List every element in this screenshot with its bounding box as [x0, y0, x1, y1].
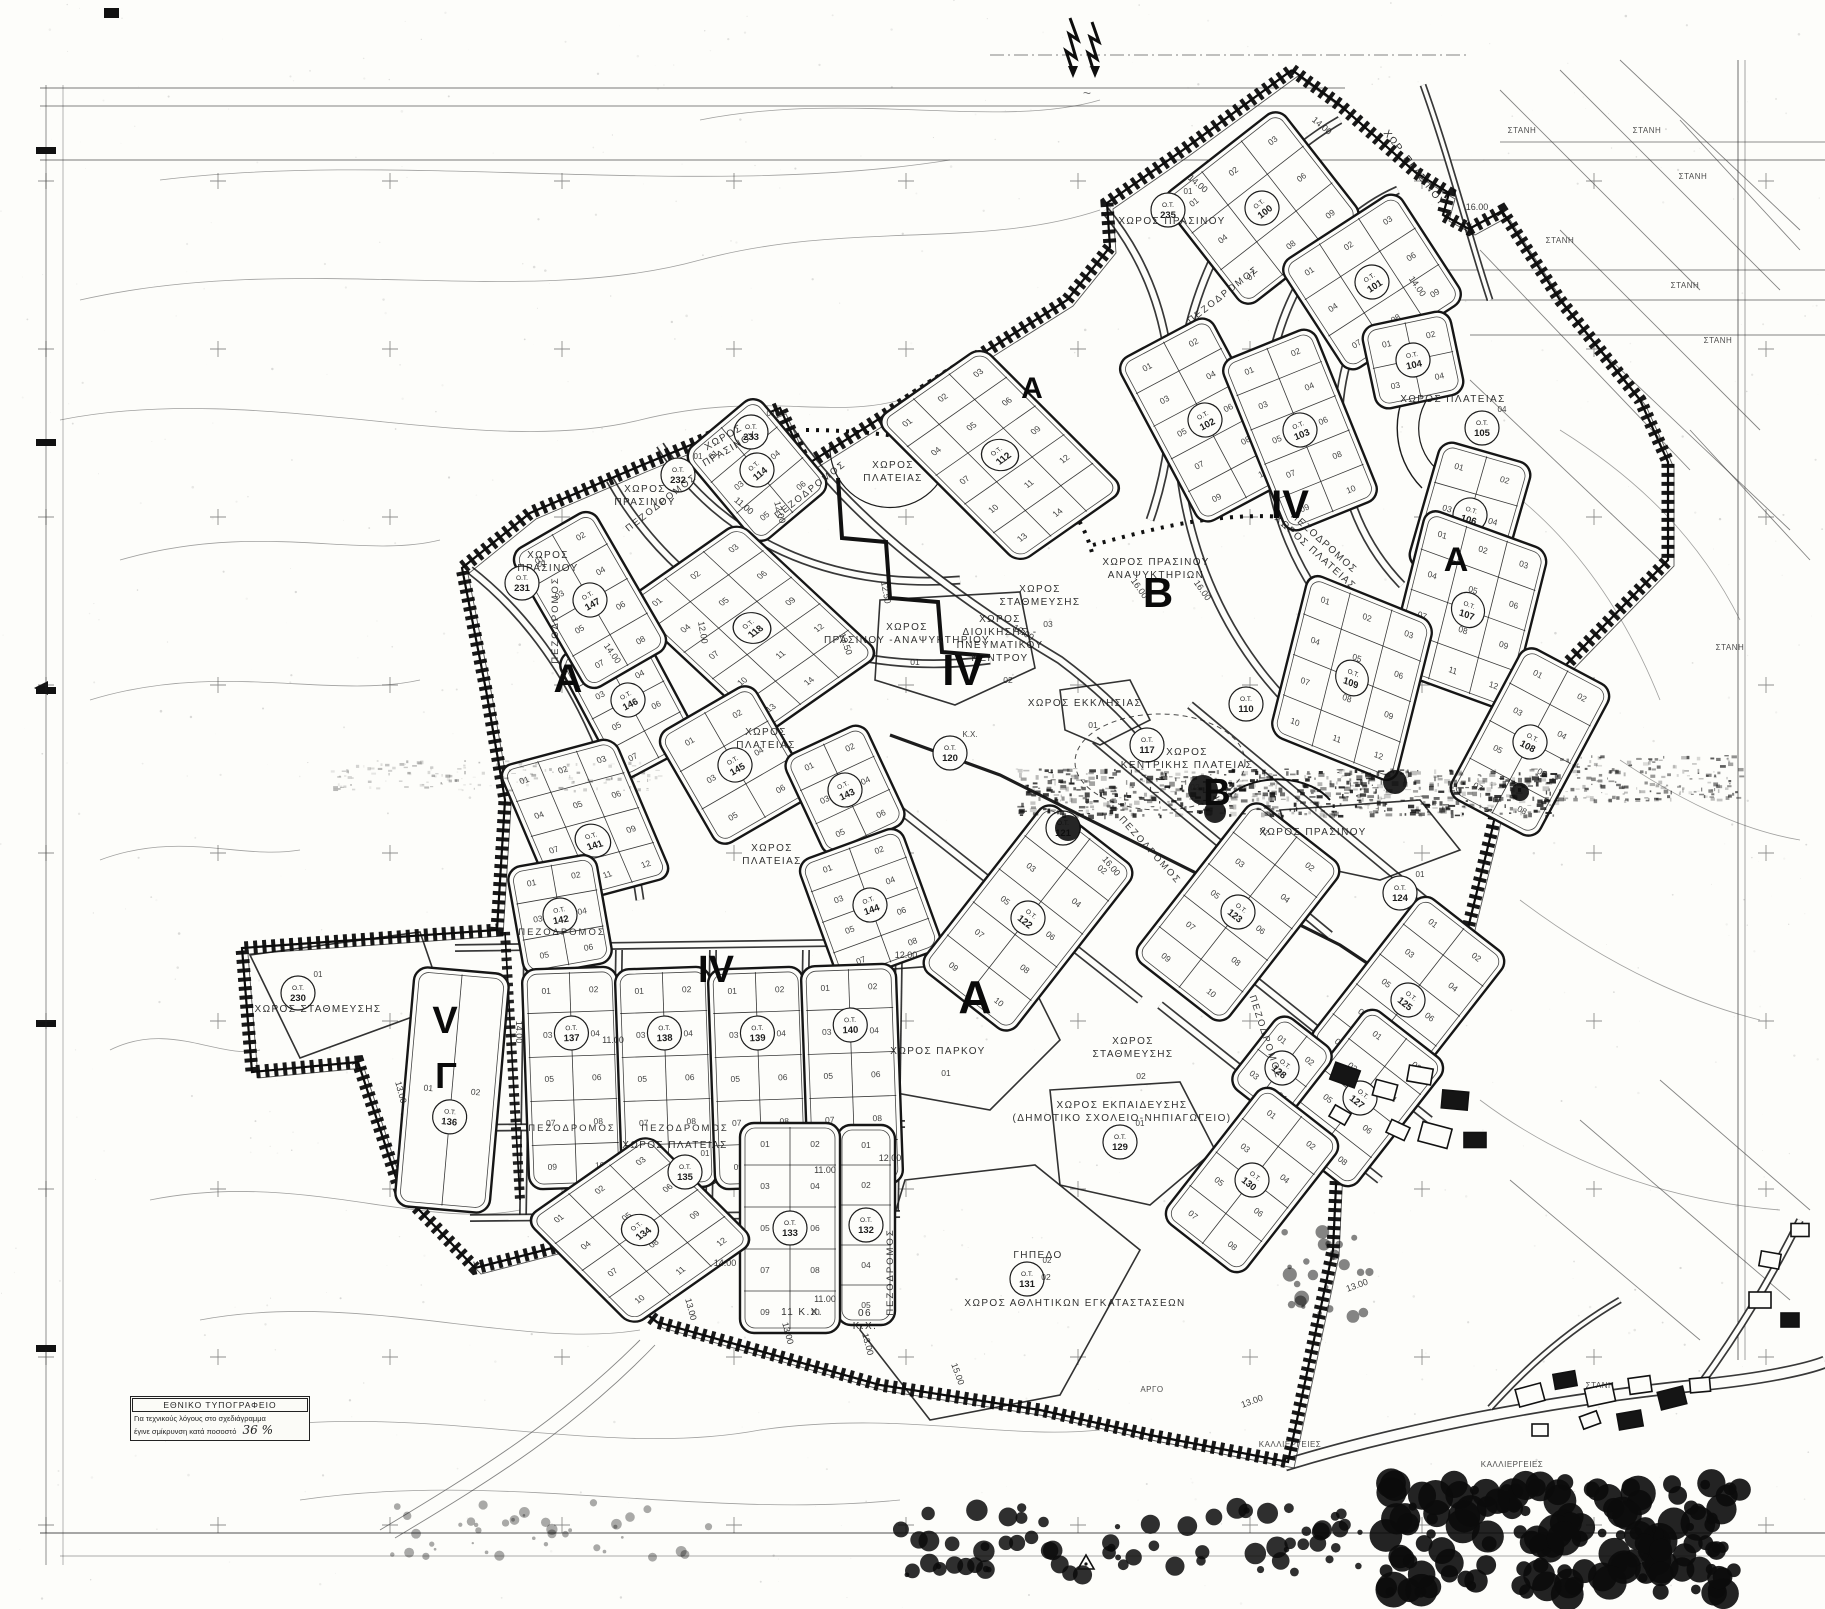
- zone-letter: Β: [1203, 772, 1230, 814]
- street-label: ΠΕΖΟΔΡΟΜΟΣ: [885, 1228, 896, 1315]
- plot-number: 02: [682, 984, 692, 994]
- block-number: 110: [1238, 704, 1253, 715]
- circle-sub-label: 01: [1184, 187, 1193, 196]
- block-ot-prefix: Ο.Τ.: [860, 1217, 872, 1224]
- reduction-note-box: ΕΘΝΙΚΟ ΤΥΠΟΓΡΑΦΕΙΟ Για τεχνικούς λόγους …: [130, 1396, 310, 1441]
- plot-number: 09: [547, 1162, 557, 1172]
- rural-label: ΣΤΑΝΗ: [1633, 126, 1662, 135]
- block-number: 131: [1019, 1279, 1036, 1290]
- block-ot-prefix: Ο.Τ.: [292, 985, 304, 992]
- space-label-line: ΣΤΑΘΜΕΥΣΗΣ: [1092, 1049, 1173, 1060]
- plot-number: 06: [592, 1072, 602, 1082]
- rural-label: ΣΤΑΝΗ: [1716, 643, 1745, 652]
- city-block-112: 01020304050607091011121314Ο.Τ.112: [875, 346, 1125, 564]
- dimension-label: 13.00: [683, 1297, 698, 1321]
- space-label: ΧΩΡΟΣ ΕΚΠΑΙΔΕΥΣΗΣ(ΔΗΜΟΤΙΚΟ ΣΧΟΛΕΙΟ-ΝΗΠΙΑ…: [1013, 1100, 1232, 1124]
- plot-number: 01: [541, 986, 551, 996]
- space-label-line: ΧΩΡΟΣ ΣΤΑΘΜΕΥΣΗΣ: [255, 1004, 382, 1015]
- block-number: 136: [441, 1116, 458, 1128]
- plot-number: 01: [634, 986, 644, 996]
- plot-number: 03: [543, 1030, 553, 1040]
- block-number: 138: [657, 1033, 673, 1045]
- village-house: [1749, 1292, 1771, 1308]
- space-label-line: ΧΩΡΟΣ ΠΡΑΣΙΝΟΥ: [1118, 216, 1225, 227]
- block-ot-prefix: Ο.Τ.: [679, 1164, 691, 1171]
- space-label-line: Κ.Χ.: [853, 1321, 878, 1332]
- block-number: 124: [1392, 893, 1409, 904]
- street-label: ΠΕΖΟΔΡΟΜΟΣ: [528, 1123, 615, 1134]
- village-house: [1532, 1424, 1548, 1436]
- plot-number: 09: [760, 1307, 770, 1317]
- space-label-line: ΓΗΠΕΔΟ: [1013, 1250, 1062, 1261]
- dimension-label: 11.00: [602, 1035, 624, 1045]
- block-number: 120: [942, 753, 958, 764]
- plot-number: 03: [760, 1181, 770, 1191]
- space-label-line: ΧΩΡΟΣ: [886, 622, 928, 633]
- rural-label: ΣΤΑΝΗ: [1671, 281, 1700, 290]
- space-label-line: ΧΩΡΟΣ: [624, 484, 666, 495]
- space-label-line: ΠΡΑΣΙΝΟΥ: [517, 563, 578, 574]
- block-number: 231: [514, 583, 531, 594]
- block-number: 105: [1474, 428, 1491, 439]
- plot-number: 04: [861, 1260, 871, 1270]
- plot-number: 01: [760, 1139, 770, 1149]
- space-label: ΧΩΡΟΣ ΣΤΑΘΜΕΥΣΗΣ: [255, 1004, 382, 1015]
- zone-letter: Α: [1021, 372, 1043, 405]
- village-house: [1418, 1121, 1452, 1148]
- rural-label: ΣΤΑΝΗ: [1508, 126, 1537, 135]
- dimension-label: 12.00: [879, 1153, 902, 1163]
- space-sub-number: 01: [1088, 720, 1098, 730]
- rural-label: ΣΤΑΝΗ: [1546, 236, 1575, 245]
- dimension-label: 14.00: [714, 1258, 737, 1268]
- block-ot-prefix: Ο.Τ.: [751, 1025, 763, 1032]
- city-block-122: 01020304050607080910Ο.Τ.122: [918, 800, 1138, 1036]
- plot-number: 02: [861, 1180, 871, 1190]
- rural-label: ΑΡΓΟ: [1140, 1385, 1163, 1394]
- space-label-line: 11 Κ.Χ.: [781, 1307, 823, 1318]
- dimension-label: 11.00: [814, 1294, 836, 1304]
- plot-number: 06: [810, 1223, 820, 1233]
- block-number: 140: [842, 1025, 858, 1037]
- village-house: [1791, 1224, 1809, 1237]
- city-block-144: 0102030405060708Ο.Τ.144: [796, 825, 944, 985]
- plot-number: 04: [810, 1181, 820, 1191]
- block-ot-prefix: Ο.Τ.: [1114, 1134, 1126, 1141]
- plot-number: 01: [526, 877, 537, 889]
- space-label-line: ΧΩΡΟΣ: [745, 727, 787, 738]
- space-label: ΧΩΡΟΣ ΠΑΡΚΟΥ01: [890, 1046, 985, 1078]
- circle-sub-label: 04: [1498, 405, 1507, 414]
- space-label-line: ΧΩΡΟΣ: [527, 550, 569, 561]
- dimension-label: 12.00: [895, 950, 918, 960]
- zone-letter: Α: [1444, 541, 1469, 579]
- space-sub-number: 03: [1043, 619, 1053, 629]
- plot-number: 03: [729, 1030, 739, 1040]
- scanned-town-plan-sheet: { "legend": { "title": "ΕΘΝΙΚΟ ΤΥΠΟΓΡΑΦΕ…: [0, 0, 1825, 1609]
- rural-label: ΣΤΑΝΗ: [1704, 336, 1733, 345]
- plot-number: 01: [423, 1083, 434, 1094]
- plot-number: 05: [760, 1223, 770, 1233]
- legend-reduction-value: 36 %: [238, 1423, 273, 1437]
- plot-number: 04: [776, 1028, 786, 1038]
- space-label: ΧΩΡΟΣΠΛΑΤΕΙΑΣ: [742, 843, 801, 867]
- block-ot-prefix: Ο.Τ.: [565, 1025, 577, 1032]
- zone-letter: Α: [958, 971, 991, 1023]
- plot-number: 02: [810, 1139, 820, 1149]
- block-ot-prefix: Ο.Τ.: [1141, 737, 1153, 744]
- block-number: 133: [782, 1228, 798, 1239]
- dimension-label: 13.00: [1240, 1393, 1265, 1410]
- plot-number: 03: [636, 1030, 646, 1040]
- dimension-label: 14.00: [514, 1021, 524, 1044]
- space-label-line: ΠΛΑΤΕΙΑΣ: [863, 473, 922, 484]
- village-house: [1464, 1133, 1486, 1148]
- circle-sub-label: 01: [767, 409, 776, 418]
- plot-number: 02: [471, 1087, 482, 1098]
- dimension-label: 16.00: [1466, 202, 1489, 212]
- plot-number: 07: [760, 1265, 770, 1275]
- space-label-line: ΧΩΡΟΣ: [1112, 1036, 1154, 1047]
- zone-letter: Β: [1143, 569, 1173, 616]
- plot-number: 06: [778, 1072, 788, 1082]
- plot-number: 08: [872, 1113, 882, 1123]
- space-label-line: ΧΩΡΟΣ ΠΡΑΣΙΝΟΥ: [1102, 557, 1209, 568]
- plot-number: 04: [590, 1028, 600, 1038]
- dimension-label: 13.00: [1345, 1277, 1370, 1294]
- dimension-label: 11.00: [814, 1165, 836, 1175]
- space-label-line: ΣΤΑΘΜΕΥΣΗΣ: [999, 597, 1080, 608]
- rural-label: ΚΑΛΛΙΕΡΓΕΙΕΣ: [1259, 1440, 1322, 1449]
- space-label-line: ΧΩΡΟΣ ΠΑΡΚΟΥ: [890, 1046, 985, 1057]
- block-ot-prefix: Ο.Τ.: [516, 575, 528, 582]
- zone-letter: V: [432, 1000, 458, 1042]
- zone-letter: IV: [942, 646, 984, 695]
- plot-number: 05: [730, 1074, 740, 1084]
- zone-letter: Α: [554, 657, 583, 701]
- plot-number: 05: [544, 1074, 554, 1084]
- space-sub-number: 02: [1041, 1272, 1051, 1282]
- village-house: [1579, 1411, 1600, 1429]
- plot-number: 02: [589, 984, 599, 994]
- space-label-line: ΚΕΝΤΡΙΚΗΣ ΠΛΑΤΕΙΑΣ: [1121, 760, 1253, 771]
- space-label-line: ΧΩΡΟΣ ΑΘΛΗΤΙΚΩΝ ΕΓΚΑΤΑΣΤΑΣΕΩΝ: [964, 1298, 1185, 1309]
- space-label: ΧΩΡΟΣΣΤΑΘΜΕΥΣΗΣ02: [1092, 1036, 1173, 1081]
- village-house: [1781, 1313, 1799, 1327]
- plot-number: 02: [570, 869, 581, 881]
- block-ot-prefix: Ο.Τ.: [444, 1108, 457, 1116]
- village-house: [1689, 1377, 1710, 1393]
- space-label: ΧΩΡΟΣΠΛΑΤΕΙΑΣ: [863, 460, 922, 484]
- space-label-line: ΧΩΡΟΣ ΠΡΑΣΙΝΟΥ: [1259, 827, 1366, 838]
- space-label-line: ΧΩΡΟΣ ΠΛΑΤΕΙΑΣ: [622, 1140, 727, 1151]
- space-label: ΧΩΡΟΣ ΠΛΑΤΕΙΑΣ: [1400, 394, 1505, 405]
- block-number: 230: [290, 993, 306, 1004]
- block-number: 129: [1112, 1142, 1128, 1153]
- building-blocks: 0102030406070809Ο.Τ.1000102030406070809Ο…: [394, 107, 1614, 1333]
- block-ot-prefix: Ο.Τ.: [1021, 1271, 1033, 1278]
- village-house: [1759, 1251, 1781, 1269]
- block-ot-prefix: Ο.Τ.: [658, 1025, 670, 1032]
- legend-title: ΕΘΝΙΚΟ ΤΥΠΟΓΡΑΦΕΙΟ: [132, 1398, 308, 1412]
- space-label: 11 Κ.Χ.: [781, 1307, 823, 1318]
- plot-number: 05: [637, 1074, 647, 1084]
- plot-number: 03: [822, 1027, 832, 1037]
- block-ot-prefix: Ο.Τ.: [1476, 420, 1488, 427]
- rural-label: ΣΤΑΝΗ: [1679, 172, 1708, 181]
- space-label-line: ΧΩΡΟΣ: [1019, 584, 1061, 595]
- circle-sub-label: 01: [1416, 870, 1425, 879]
- plot-number: 07: [732, 1118, 742, 1128]
- plot-number: 06: [871, 1069, 881, 1079]
- north-arrow-squiggle: ~: [1066, 18, 1100, 101]
- rural-label: ΚΑΛΛΙΕΡΓΕΙΕΣ: [1481, 1460, 1544, 1469]
- block-ot-prefix: Ο.Τ.: [784, 1220, 796, 1227]
- block-ot-prefix: Ο.Τ.: [944, 745, 956, 752]
- plot-number: 05: [823, 1071, 833, 1081]
- block-number: 132: [858, 1225, 874, 1236]
- block-number: 117: [1139, 745, 1154, 756]
- street-label: ΠΕΖΟΔΡΟΜΟΣ: [518, 927, 605, 938]
- street-label: ΠΕΖΟΔΡΟΜΟΣ: [550, 576, 561, 663]
- dimension-label: 15.00: [949, 1362, 966, 1387]
- plot-number: 06: [685, 1072, 695, 1082]
- plot-number: 04: [683, 1028, 693, 1038]
- space-label-line: ΧΩΡΟΣ ΕΚΚΛΗΣΙΑΣ: [1028, 698, 1142, 709]
- space-label-line: ΧΩΡΟΣ ΕΚΠΑΙΔΕΥΣΗΣ: [1057, 1100, 1188, 1111]
- space-label-line: (ΔΗΜΟΤΙΚΟ ΣΧΟΛΕΙΟ-ΝΗΠΙΑΓΩΓΕΙΟ): [1013, 1113, 1232, 1124]
- space-sub-number: 02: [1003, 675, 1013, 685]
- map-label: ~: [1083, 85, 1091, 101]
- village-house: [1628, 1376, 1652, 1395]
- block-number: 137: [564, 1033, 580, 1045]
- plot-number: 01: [861, 1140, 871, 1150]
- space-label-line: 06: [858, 1308, 872, 1319]
- plot-number: 01: [820, 983, 830, 993]
- block-number: 139: [750, 1033, 766, 1045]
- plot-number: 06: [583, 941, 594, 953]
- street-label: ΠΕΖΟΔΡΟΜΟΣ: [641, 1123, 728, 1134]
- space-label: ΧΩΡΟΣ ΠΛΑΤΕΙΑΣ: [622, 1140, 727, 1151]
- plot-number: 04: [869, 1025, 879, 1035]
- space-label-line: ΠΛΑΤΕΙΑΣ: [742, 856, 801, 867]
- block-ot-prefix: Ο.Τ.: [1162, 202, 1174, 209]
- city-block-142: 010203040506Ο.Τ.142: [506, 853, 614, 977]
- zone-letter: Γ: [435, 1055, 457, 1096]
- plan-canvas: 0102030406070809Ο.Τ.1000102030406070809Ο…: [0, 0, 1825, 1609]
- block-number: 135: [677, 1172, 694, 1183]
- space-label-line: ΧΩΡΟΣ: [751, 843, 793, 854]
- space-label-line: ΧΩΡΟΣ ΠΛΑΤΕΙΑΣ: [1400, 394, 1505, 405]
- plot-number: 02: [868, 981, 878, 991]
- block-ot-prefix: Ο.Τ.: [1394, 885, 1406, 892]
- space-sub-number: 01: [910, 657, 920, 667]
- space-label: ΧΩΡΟΣ ΠΡΑΣΙΝΟΥ: [1259, 827, 1366, 838]
- circle-sub-label: Κ.Χ.: [962, 730, 977, 739]
- block-ot-prefix: Ο.Τ.: [844, 1017, 856, 1024]
- village-house: [1407, 1065, 1433, 1085]
- city-block-137: 01020304050607080910Ο.Τ.137: [522, 966, 625, 1189]
- space-label-line: ΠΛΑΤΕΙΑΣ: [736, 740, 795, 751]
- village-house: [1617, 1410, 1643, 1430]
- legend-line1: Για τεχνικούς λόγους στο σχεδιάγραμμα: [134, 1414, 266, 1423]
- legend-line2: έγινε σμίκρυνση κατά ποσοστό: [134, 1427, 236, 1436]
- zone-letter: IV: [698, 949, 735, 991]
- space-sub-number: 02: [1136, 1071, 1146, 1081]
- plot-number: 03: [532, 913, 543, 925]
- space-label: ΧΩΡΟΣ ΠΡΑΣΙΝΟΥ: [1118, 216, 1225, 227]
- block-ot-prefix: Ο.Τ.: [672, 467, 684, 474]
- space-sub-number: 01: [941, 1068, 951, 1078]
- dimension-label: 13.00: [860, 1332, 875, 1356]
- space-sub-number: 02: [1190, 782, 1200, 792]
- zone-letter: IV: [1271, 483, 1309, 527]
- space-label-line: ΧΩΡΟΣ: [1166, 747, 1208, 758]
- village-house: [1441, 1090, 1468, 1110]
- plot-number: 02: [775, 984, 785, 994]
- space-label-line: ΧΩΡΟΣ: [872, 460, 914, 471]
- village-house: [1553, 1371, 1577, 1390]
- plot-number: 05: [539, 949, 550, 961]
- space-label: ΧΩΡΟΣ ΑΘΛΗΤΙΚΩΝ ΕΓΚΑΤΑΣΤΑΣΕΩΝ: [964, 1298, 1185, 1309]
- rural-label: ΣΤΑΝΗ: [1586, 1381, 1615, 1390]
- circle-sub-label: 01: [314, 970, 323, 979]
- plot-number: 08: [810, 1265, 820, 1275]
- plot-number: 04: [577, 905, 588, 917]
- block-ot-prefix: Ο.Τ.: [1240, 696, 1252, 703]
